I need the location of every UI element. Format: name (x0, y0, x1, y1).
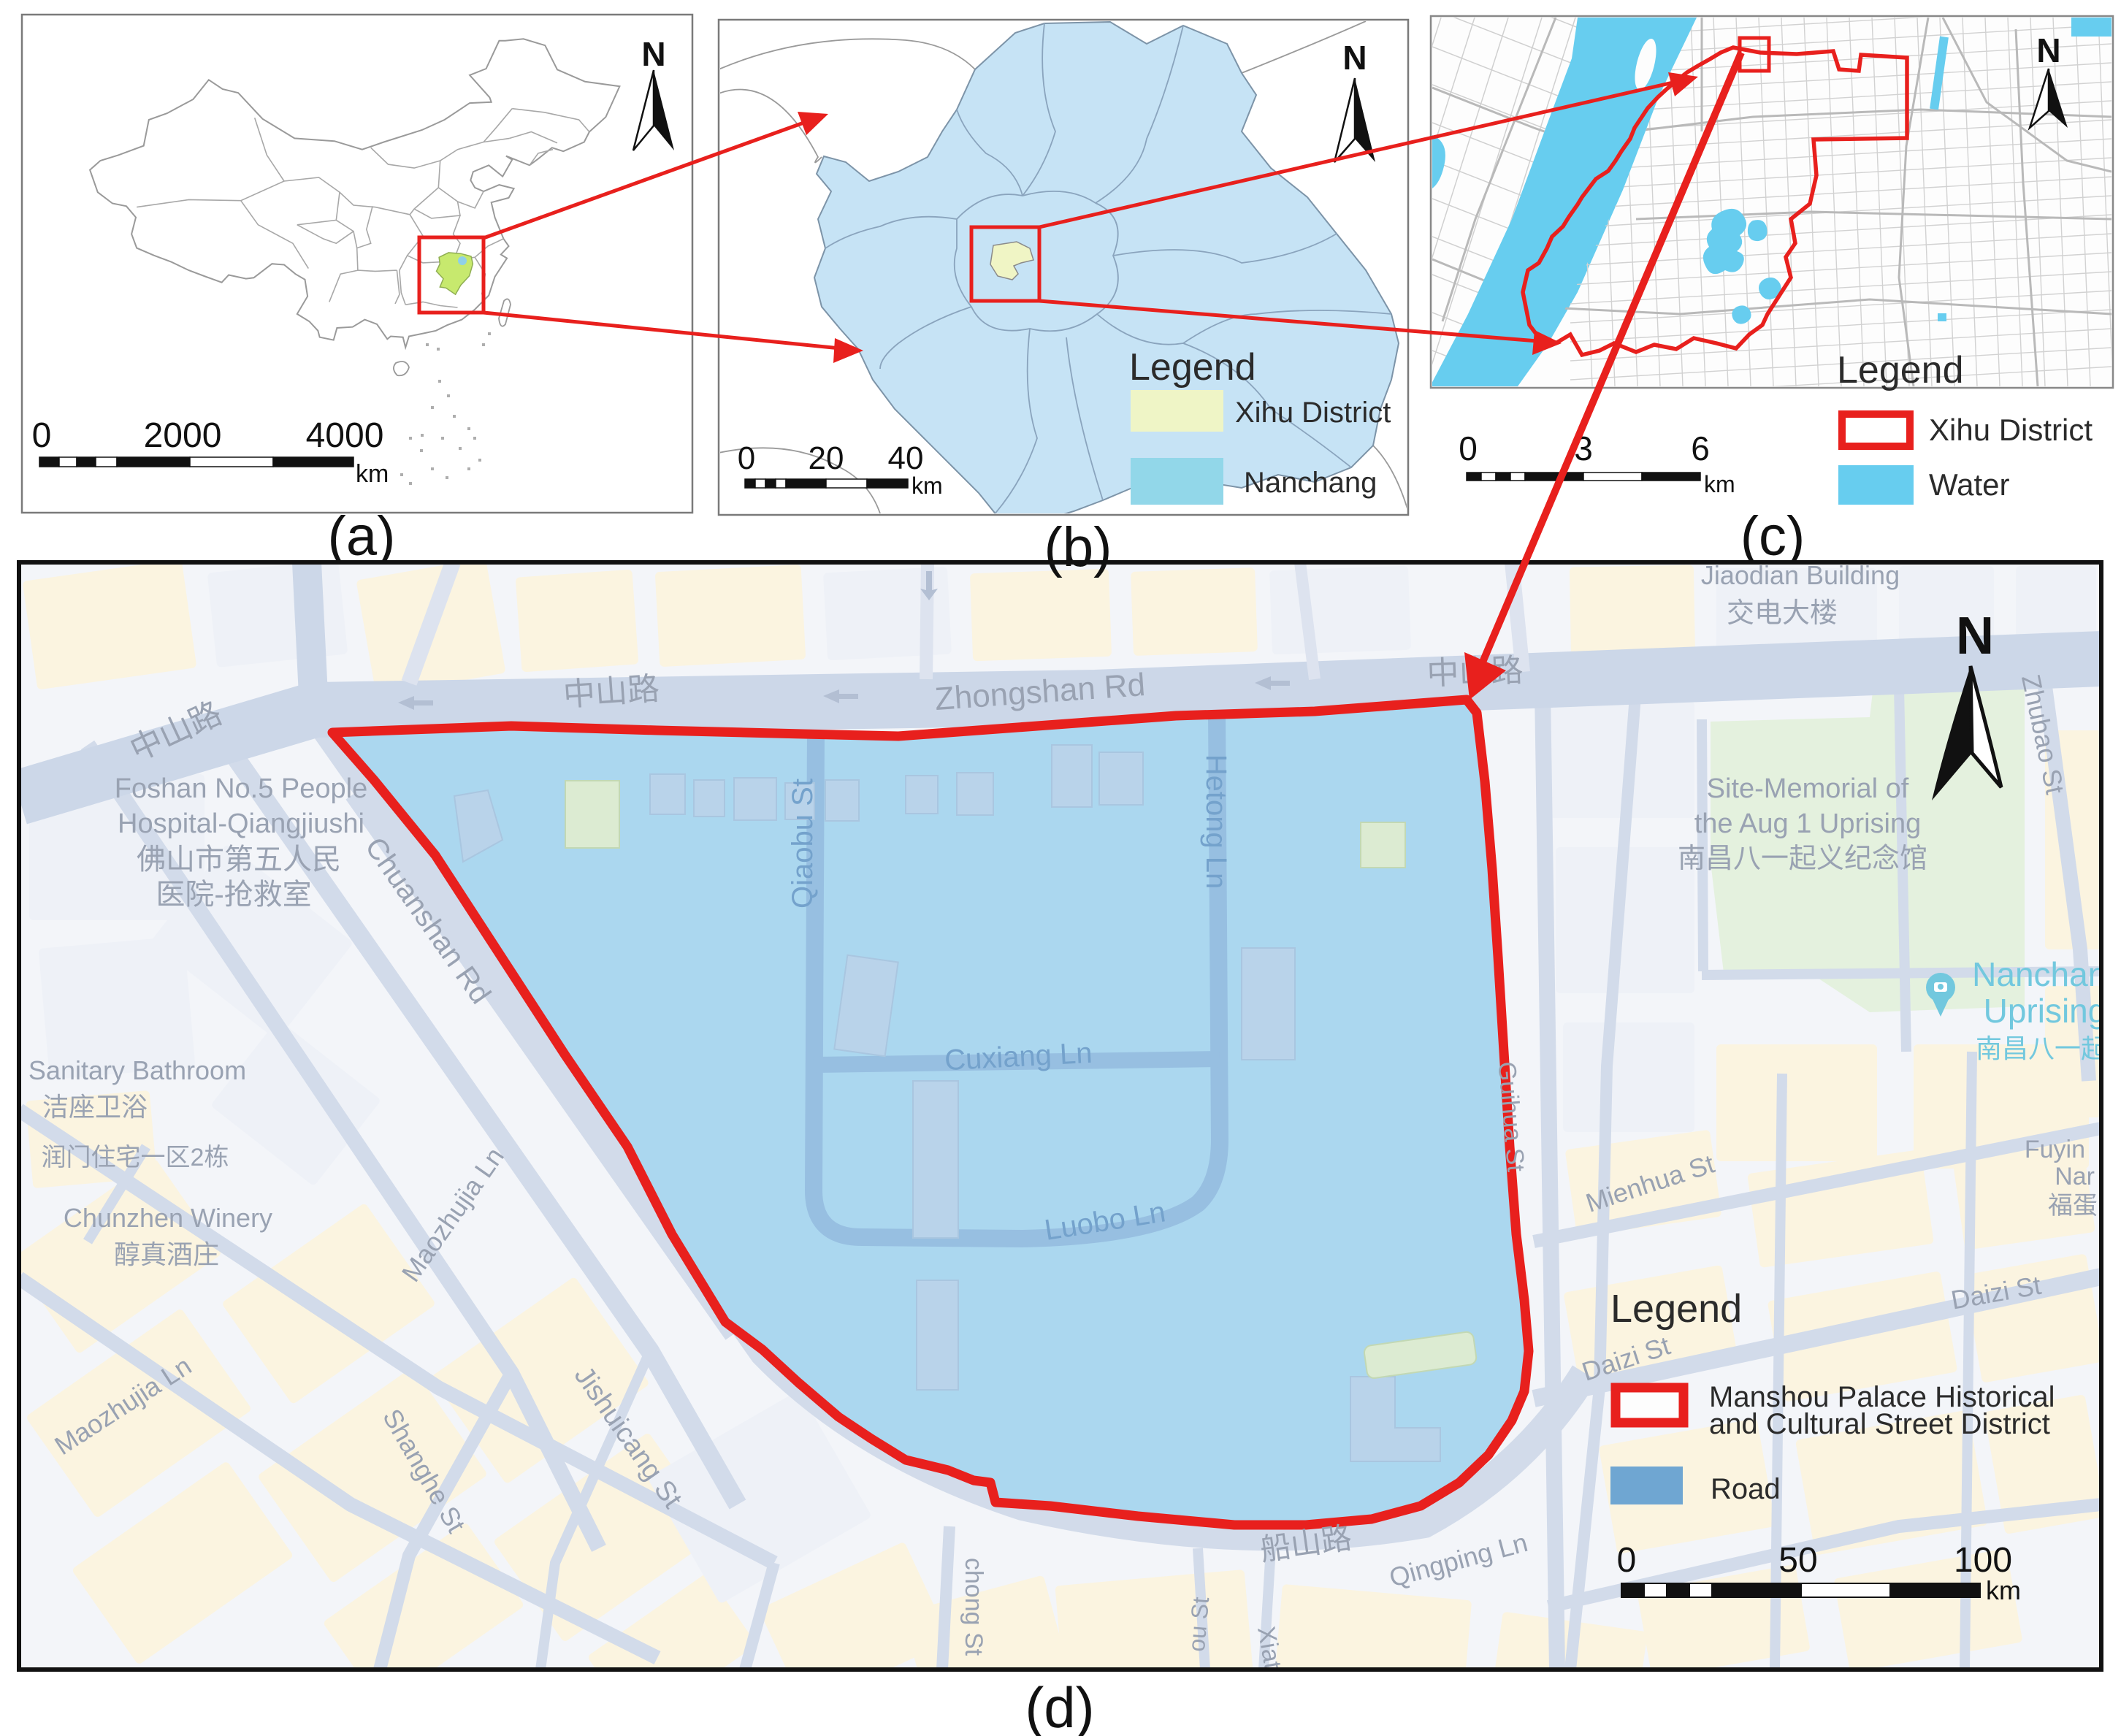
svg-text:4000: 4000 (306, 416, 384, 455)
svg-text:Xihu District: Xihu District (1929, 413, 2093, 447)
svg-text:km: km (356, 460, 389, 488)
svg-text:40: 40 (888, 440, 924, 476)
svg-text:0: 0 (738, 440, 755, 476)
svg-text:Hospital-Qiangjiushi: Hospital-Qiangjiushi (118, 808, 364, 839)
svg-text:Hetong Ln: Hetong Ln (1200, 754, 1232, 890)
svg-text:Site-Memorial of: Site-Memorial of (1707, 773, 1909, 804)
svg-text:N: N (641, 35, 665, 73)
svg-text:6: 6 (1691, 429, 1710, 467)
svg-text:佛山市第五人民: 佛山市第五人民 (137, 844, 341, 876)
svg-text:0: 0 (32, 416, 52, 455)
svg-text:2000: 2000 (144, 416, 222, 455)
svg-text:(b): (b) (1044, 516, 1112, 578)
svg-text:chong St: chong St (960, 1558, 987, 1656)
svg-text:0: 0 (1459, 429, 1478, 467)
svg-text:(a): (a) (328, 505, 396, 567)
svg-text:润门住宅一区2栋: 润门住宅一区2栋 (42, 1144, 229, 1171)
svg-text:中山路: 中山路 (562, 670, 660, 713)
svg-text:Jiaodian Building: Jiaodian Building (1701, 560, 1900, 590)
svg-text:交电大楼: 交电大楼 (1727, 598, 1838, 629)
svg-text:南昌八一起: 南昌八一起 (1976, 1033, 2107, 1063)
svg-text:醇真酒庄: 醇真酒庄 (114, 1239, 219, 1269)
svg-text:Foshan No.5 People: Foshan No.5 People (115, 773, 367, 804)
svg-text:Legend: Legend (1129, 346, 1256, 389)
svg-text:N: N (2036, 31, 2060, 69)
svg-text:Xihu District: Xihu District (1235, 397, 1391, 429)
svg-text:Legend: Legend (1837, 349, 1964, 391)
svg-text:km: km (912, 473, 943, 499)
svg-text:ou St: ou St (1183, 1596, 1214, 1653)
svg-text:(d): (d) (1025, 1675, 1094, 1736)
svg-text:km: km (1704, 471, 1735, 497)
svg-text:N: N (1342, 39, 1367, 77)
svg-text:南昌八一起义纪念馆: 南昌八一起义纪念馆 (1678, 844, 1927, 874)
svg-text:Nar: Nar (2055, 1163, 2095, 1190)
svg-text:Legend: Legend (1610, 1287, 1742, 1331)
svg-text:N: N (1956, 607, 1994, 665)
svg-text:50: 50 (1778, 1541, 1817, 1580)
svg-text:Chunzhen Winery: Chunzhen Winery (64, 1203, 272, 1233)
svg-text:0: 0 (1617, 1541, 1637, 1580)
svg-text:Sanitary Bathroom: Sanitary Bathroom (28, 1055, 246, 1085)
svg-text:洁座卫浴: 洁座卫浴 (42, 1092, 148, 1122)
svg-text:Qiaobu St: Qiaobu St (787, 779, 819, 909)
svg-text:Road: Road (1711, 1473, 1781, 1505)
svg-text:100: 100 (1954, 1541, 2012, 1580)
svg-text:医院-抢救室: 医院-抢救室 (156, 879, 311, 911)
svg-text:km: km (1986, 1575, 2021, 1605)
svg-text:20: 20 (809, 440, 844, 476)
svg-text:福蛋: 福蛋 (2048, 1192, 2098, 1220)
svg-text:Fuyin: Fuyin (2025, 1136, 2085, 1163)
svg-text:(c): (c) (1740, 505, 1805, 567)
svg-text:and Cultural Street District: and Cultural Street District (1709, 1408, 2050, 1440)
svg-text:Uprising: Uprising (1984, 992, 2107, 1030)
svg-text:the Aug 1 Uprising: the Aug 1 Uprising (1694, 808, 1922, 839)
svg-text:Nanchang: Nanchang (1972, 955, 2121, 993)
svg-text:Nanchang: Nanchang (1244, 467, 1377, 499)
svg-text:Water: Water (1929, 467, 2009, 502)
